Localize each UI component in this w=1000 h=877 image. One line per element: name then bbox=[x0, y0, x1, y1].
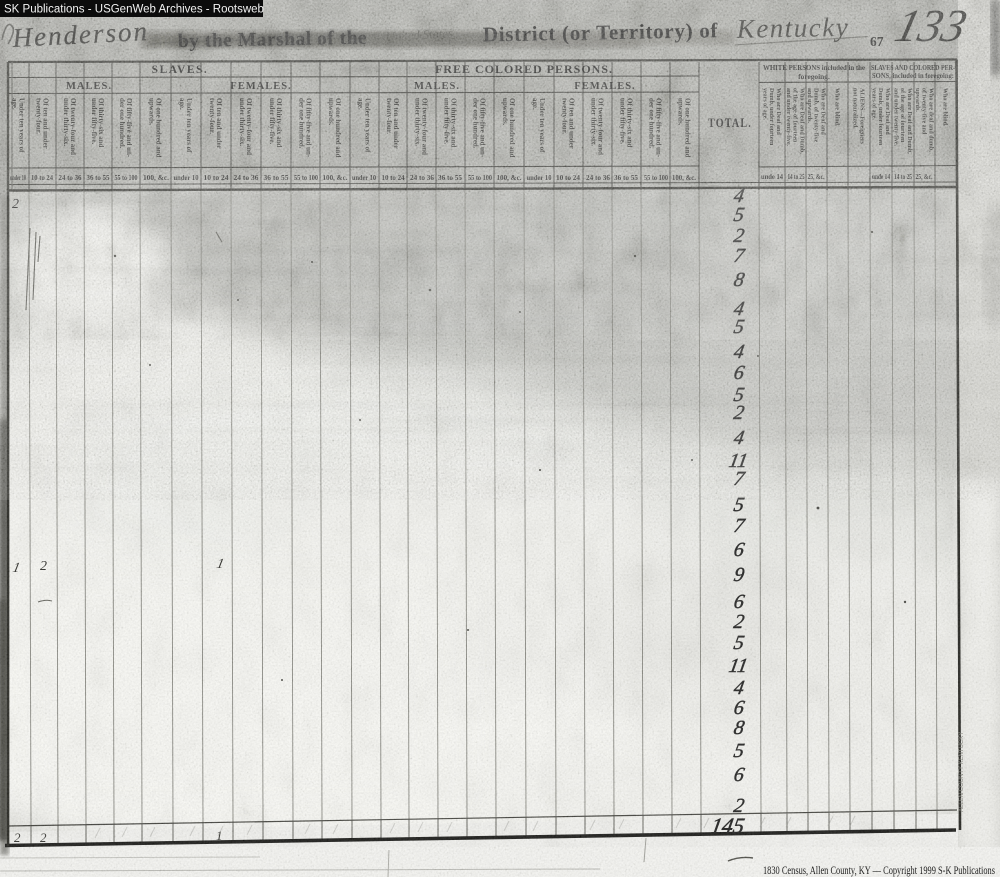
svg-text:SK Publications - USGenWeb Arc: SK Publications - USGenWeb Archives - Ro… bbox=[4, 4, 264, 16]
